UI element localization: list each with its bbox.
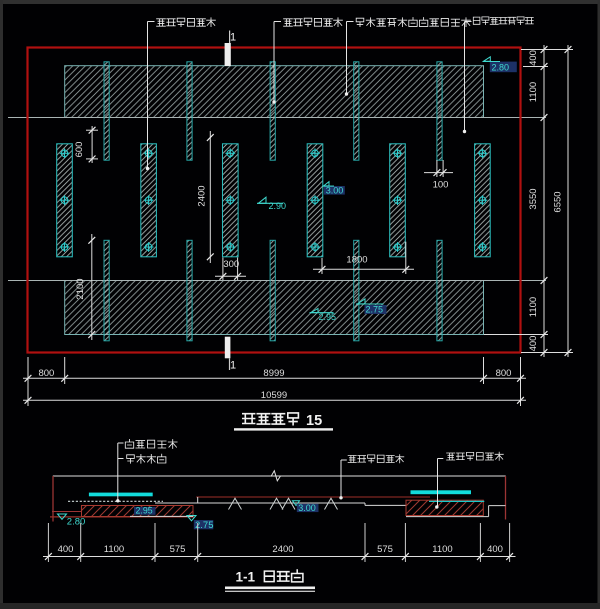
svg-text:2.80: 2.80 — [492, 62, 510, 72]
svg-text:1: 1 — [230, 360, 236, 372]
svg-text:1: 1 — [230, 32, 236, 44]
svg-text:400: 400 — [487, 544, 503, 555]
svg-text:3550: 3550 — [528, 188, 539, 209]
svg-text:3.00: 3.00 — [298, 503, 316, 513]
svg-text:2.90: 2.90 — [269, 201, 287, 211]
svg-text:2.95: 2.95 — [319, 312, 337, 322]
svg-text:1100: 1100 — [528, 82, 539, 102]
svg-text:575: 575 — [377, 544, 393, 555]
svg-text:100: 100 — [433, 180, 449, 191]
svg-text:2.80: 2.80 — [67, 517, 86, 528]
svg-text:1800: 1800 — [346, 255, 367, 266]
svg-text:800: 800 — [38, 368, 54, 379]
svg-text:600: 600 — [74, 142, 85, 158]
svg-text:1100: 1100 — [528, 297, 539, 317]
svg-text:3.00: 3.00 — [326, 185, 344, 195]
svg-text:10599: 10599 — [261, 390, 287, 401]
svg-text:8999: 8999 — [263, 368, 284, 379]
svg-text:2400: 2400 — [196, 185, 207, 206]
svg-text:800: 800 — [496, 368, 512, 379]
svg-text:400: 400 — [58, 544, 74, 555]
svg-text:6550: 6550 — [553, 191, 564, 212]
svg-text:2400: 2400 — [272, 544, 293, 555]
svg-text:2100: 2100 — [75, 278, 86, 299]
svg-text:575: 575 — [170, 544, 186, 555]
svg-text:400: 400 — [528, 50, 539, 66]
svg-text:1-1: 1-1 — [236, 570, 256, 585]
svg-text:300: 300 — [223, 259, 239, 270]
svg-text:1100: 1100 — [104, 544, 124, 555]
svg-text:2.75: 2.75 — [366, 305, 384, 315]
svg-text:1100: 1100 — [432, 544, 452, 555]
svg-text:400: 400 — [528, 336, 539, 352]
svg-text:2.95: 2.95 — [136, 506, 153, 516]
svg-text:15: 15 — [306, 413, 322, 429]
